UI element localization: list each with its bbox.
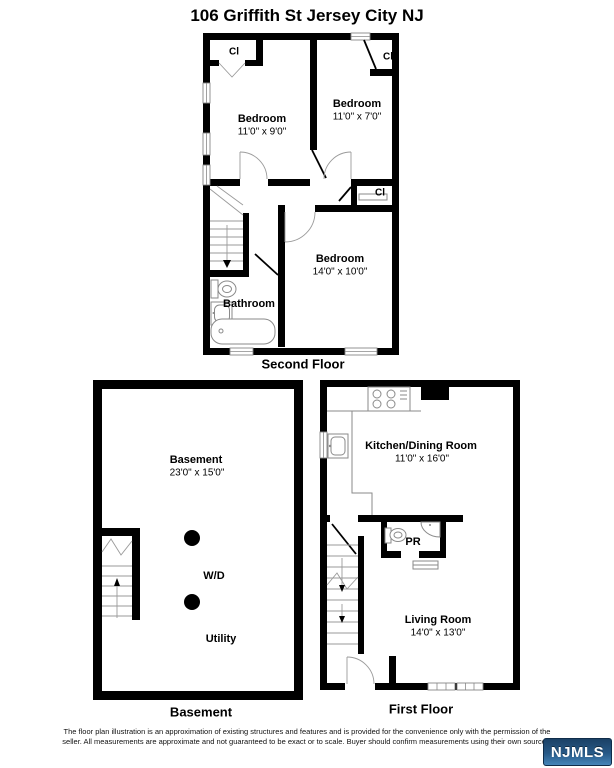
toilet-icon (211, 280, 236, 298)
stairs-arrow-icon (223, 260, 231, 268)
closet-label-2: Cl (383, 52, 393, 63)
stove-icon (368, 387, 410, 411)
room-label-utility: Utility (206, 633, 237, 645)
room-label-bathroom: Bathroom (223, 298, 275, 310)
basement-plan (90, 378, 306, 708)
second-floor-doors (219, 40, 376, 275)
room-label-basement: Basement (170, 454, 223, 466)
disclaimer-text: The floor plan illustration is an approx… (61, 727, 553, 747)
first-floor-windows (320, 432, 483, 690)
basement-stairs-icon (102, 539, 132, 618)
room-label-bedroom-3: Bedroom (316, 253, 364, 265)
room-dims-living-room: 14'0" x 13'0" (411, 628, 466, 639)
njmls-logo-text: NJMLS (551, 744, 604, 761)
stairs-arrow-icon (339, 585, 345, 592)
corner-sink-icon (421, 522, 440, 537)
first-floor-walls (320, 380, 520, 690)
floor-caption-second: Second Floor (261, 357, 344, 372)
room-dims-basement: 23'0" x 15'0" (170, 468, 225, 479)
second-floor-stairs-icon (210, 186, 243, 268)
closet-label-1: Cl (229, 47, 239, 58)
property-title: 106 Griffith St Jersey City NJ (190, 6, 423, 26)
first-floor-stairs-icon (327, 545, 358, 644)
first-floor-doors (332, 524, 375, 690)
room-dims-bedroom-3: 14'0" x 10'0" (313, 267, 368, 278)
njmls-logo: NJMLS (543, 738, 612, 766)
room-label-pr: PR (405, 536, 420, 548)
first-floor-plan (318, 378, 522, 692)
floor-caption-basement: Basement (170, 705, 232, 720)
bifold-door-icon (219, 63, 245, 77)
radiator-icon (413, 561, 438, 569)
room-dims-kitchen-dining: 11'0" x 16'0" (395, 454, 449, 465)
room-label-wd: W/D (203, 570, 224, 582)
bathtub-icon (211, 319, 275, 344)
kitchen-sink-icon (328, 434, 348, 458)
room-label-bedroom-2: Bedroom (333, 98, 381, 110)
support-column-icon (184, 594, 200, 610)
support-column-icon (184, 530, 200, 546)
room-dims-bedroom-2: 11'0" x 7'0" (333, 112, 382, 123)
room-label-bedroom-1: Bedroom (238, 113, 286, 125)
toilet-icon (385, 528, 406, 543)
room-label-kitchen-dining: Kitchen/Dining Room (365, 440, 477, 452)
room-dims-bedroom-1: 11'0" x 9'0" (238, 127, 287, 138)
floor-plan-page: 106 Griffith St Jersey City NJ (0, 0, 614, 768)
closet-label-3: Cl (375, 188, 385, 199)
floor-caption-first: First Floor (389, 702, 453, 717)
room-label-living-room: Living Room (405, 614, 472, 626)
stairs-arrow-icon (114, 578, 120, 586)
